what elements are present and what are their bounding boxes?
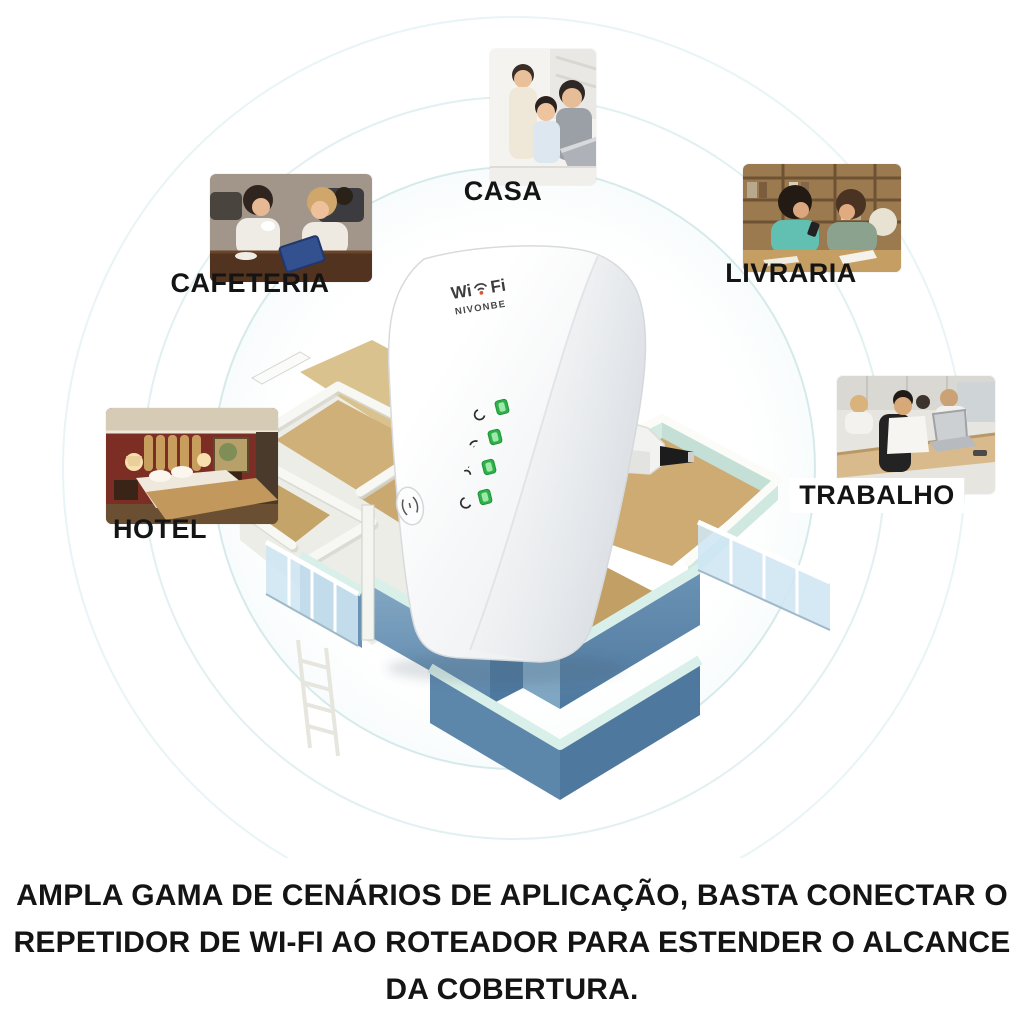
caption-line-2: REPETIDOR DE WI-FI AO ROTEADOR PARA ESTE… [0,919,1024,966]
caption-text: AMPLA GAMA DE CENÁRIOS DE APLICAÇÃO, BAS… [0,872,1024,1013]
product-infographic: CASA CAFETERIA LIVRARIA HOTEL TRABALHO [0,0,1024,1024]
logo-fi: Fi [489,276,507,297]
wifi-repeater-device: Wi Fi NIVONBE [0,0,1024,1024]
caption-line-3: DA COBERTURA. [0,966,1024,1013]
caption-line-1: AMPLA GAMA DE CENÁRIOS DE APLICAÇÃO, BAS… [0,872,1024,919]
logo-wi: Wi [450,281,473,303]
